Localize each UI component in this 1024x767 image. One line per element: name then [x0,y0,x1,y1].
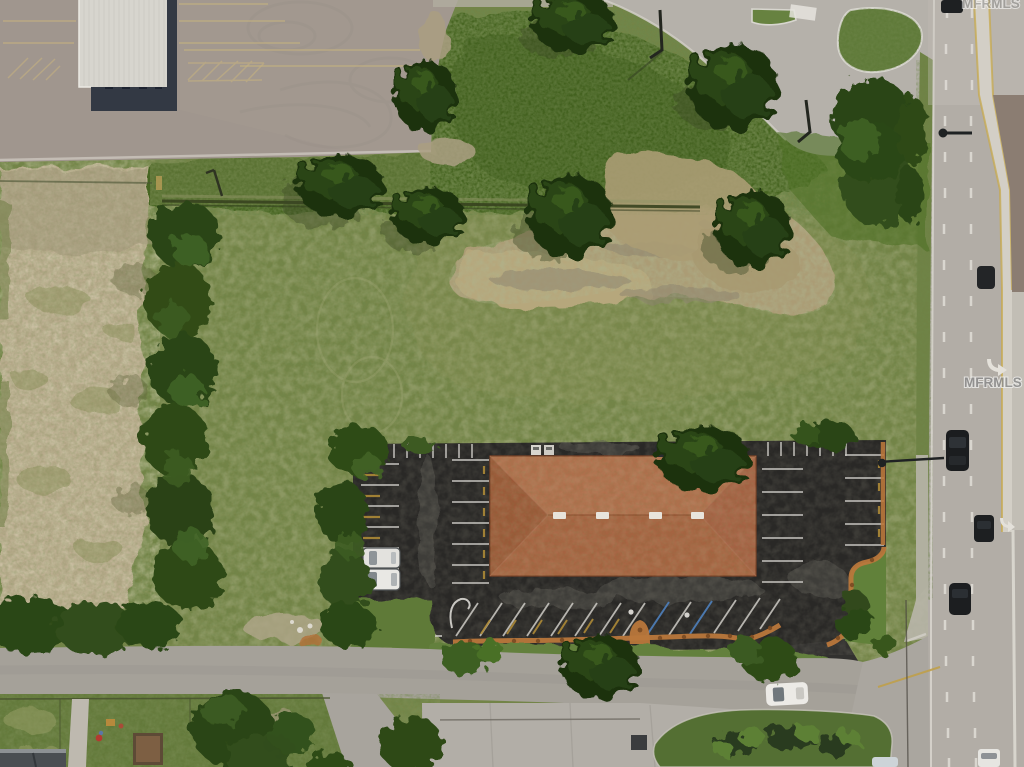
svg-text:MFRMLS: MFRMLS [962,0,1020,11]
svg-text:MFRMLS: MFRMLS [964,375,1022,390]
